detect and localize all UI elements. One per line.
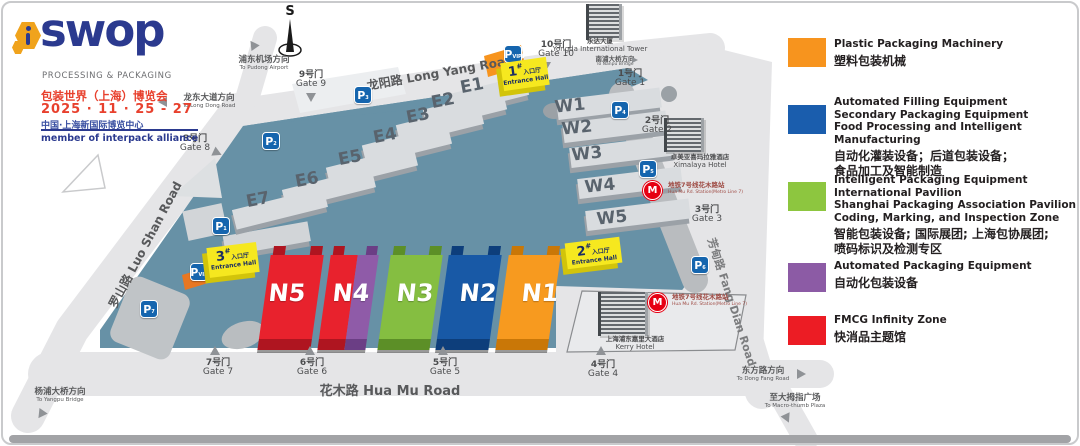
legend-item-fmcg: FMCG Infinity Zone 快消品主题馆: [788, 314, 1080, 344]
parking-icon-p5: P5: [639, 160, 657, 178]
legend-swatch-red: [788, 316, 826, 345]
hall-label-n1: N1: [514, 279, 567, 307]
direction-nanpu-bridge: 南浦大桥方向To Nanpu Bridge: [573, 56, 657, 68]
hall-label-w1: W1: [549, 94, 591, 118]
hall-label-w3: W3: [566, 142, 608, 166]
metro-icon-south: M: [648, 293, 667, 312]
brand-wordmark: swop: [40, 4, 163, 57]
legend-swatch-orange: [788, 38, 826, 67]
legend-swatch-purple: [788, 263, 826, 292]
gate-9-label: 9号门Gate 9: [280, 71, 342, 90]
road-label-hua-mu: 花木路 Hua Mu Road: [300, 380, 480, 399]
legend-swatch-blue: [788, 105, 826, 134]
gate-1-label: 1号门Gate 1: [599, 70, 661, 89]
legend-item-plastic: Plastic Packaging Machinery 塑料包装机械: [788, 38, 1080, 68]
metro-icon-west: M: [643, 181, 662, 200]
hall-label-n4: N4: [325, 279, 378, 307]
parking-icon-p3: P3: [354, 86, 372, 104]
metro-station-label-south: 地铁7号线花木路站 Hua Mu Rd. Station(Metro Line …: [672, 294, 752, 307]
gate-6-arrow-icon: [305, 346, 315, 355]
gate-3-label: 3号门Gate 3: [676, 206, 738, 225]
direction-yangpu-bridge: 杨浦大桥方向To Yangpu Bridge: [18, 388, 102, 403]
building-icon-yongda: [586, 4, 622, 40]
hall-label-n3: N3: [389, 279, 442, 307]
gate-9-arrow-icon: [306, 93, 316, 102]
parking-icon-p7: P7: [140, 300, 158, 318]
hall-label-w2: W2: [556, 116, 598, 140]
compass-south-label: S: [276, 4, 304, 19]
gate-6-label: 6号门Gate 6: [281, 359, 343, 378]
gate-4-label: 4号门Gate 4: [572, 361, 634, 380]
hall-label-w5: W5: [591, 206, 633, 230]
gate-5-arrow-icon: [438, 346, 448, 355]
nanpu-arrow-icon: [632, 57, 638, 63]
interpack-alliance: member of interpack alliance: [41, 129, 198, 144]
legend-item-filling: Automated Filling Equipment Secondary Pa…: [788, 96, 1080, 178]
parking-icon-pvip-3: PVIP: [190, 263, 208, 281]
direction-pudong-airport: 浦东机场方向To Pudong Airport: [222, 56, 306, 71]
gate-7-label: 7号门Gate 7: [187, 359, 249, 378]
bottom-scrollbar[interactable]: [9, 435, 1071, 443]
building-icon-kerry: [598, 292, 648, 336]
parking-icon-p1: P1: [212, 217, 230, 235]
landmark-label-ximalaya: 卓美亚喜玛拉雅酒店 Ximalaya Hotel: [650, 154, 750, 170]
legend-item-automated: Automated Packaging Equipment 自动化包装设备: [788, 260, 1080, 290]
parking-icon-p6: P6: [691, 256, 709, 274]
metro-station-label-west: 地铁7号线花木路站 Hua Mu Rd. Station(Metro Line …: [668, 182, 748, 195]
gate-4-arrow-icon: [596, 346, 606, 355]
gate-2-label: 2号门Gate 2: [626, 117, 688, 136]
legend-item-intelligent: Intelligent Packaging Equipment Internat…: [788, 174, 1080, 256]
hall-label-n5: N5: [261, 279, 314, 307]
gate-7-arrow-icon: [210, 346, 220, 355]
gate-5-label: 5号门Gate 5: [414, 359, 476, 378]
legend: Plastic Packaging Machinery 塑料包装机械 Autom…: [788, 0, 1080, 446]
hall-label-w4: W4: [579, 174, 621, 198]
parking-icon-p4: P4: [611, 101, 629, 119]
legend-swatch-green: [788, 182, 826, 211]
hall-label-n2: N2: [452, 279, 505, 307]
brand-tagline: PROCESSING & PACKAGING: [42, 71, 172, 81]
parking-icon-p2: P2: [262, 132, 280, 150]
entrance-hall-3: 3#入口厅 Entrance Hall: [206, 242, 259, 278]
expo-dates: 2025 · 11 · 25 - 27: [41, 102, 193, 117]
swop-venue-map-page: swop PROCESSING & PACKAGING 包装世界（上海）博览会 …: [0, 0, 1080, 446]
